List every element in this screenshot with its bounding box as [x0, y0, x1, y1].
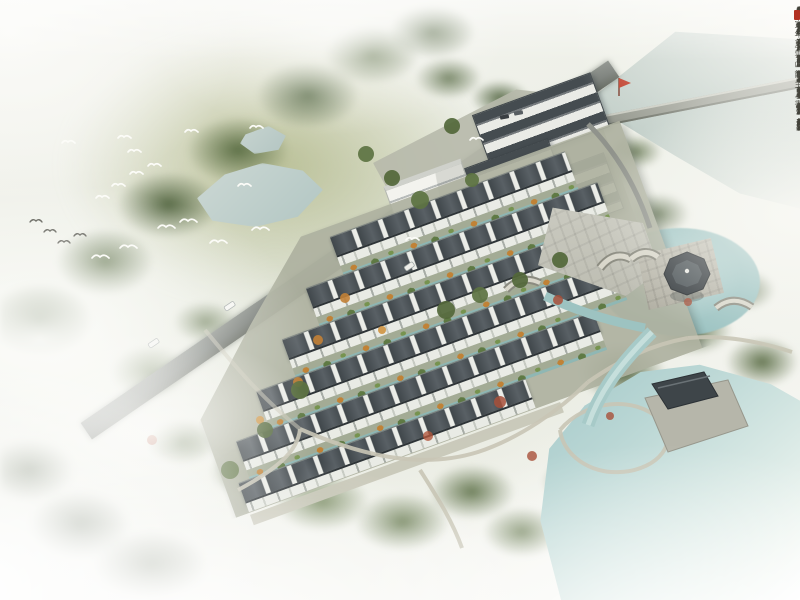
- cars: [148, 110, 524, 348]
- canopy-trees: [221, 118, 568, 479]
- stone-bridges: [506, 252, 752, 308]
- calligraphy-signature: 雲山館主人書: [794, 50, 800, 110]
- lake-embankment: [588, 124, 650, 228]
- foreground-trees: [0, 430, 300, 600]
- red-seal-signature: [794, 10, 800, 20]
- dark-birds: [30, 220, 86, 243]
- island-pavilion: [664, 252, 710, 302]
- waterside-hall: [645, 372, 748, 452]
- red-flag: [619, 78, 631, 96]
- rendering-canvas: 庚寅年夏 東南形勝三吳都會 錢塘自古繁華煙柳 畫橋風簾翠幕參差 十萬人家雲樹繞堤…: [0, 0, 800, 600]
